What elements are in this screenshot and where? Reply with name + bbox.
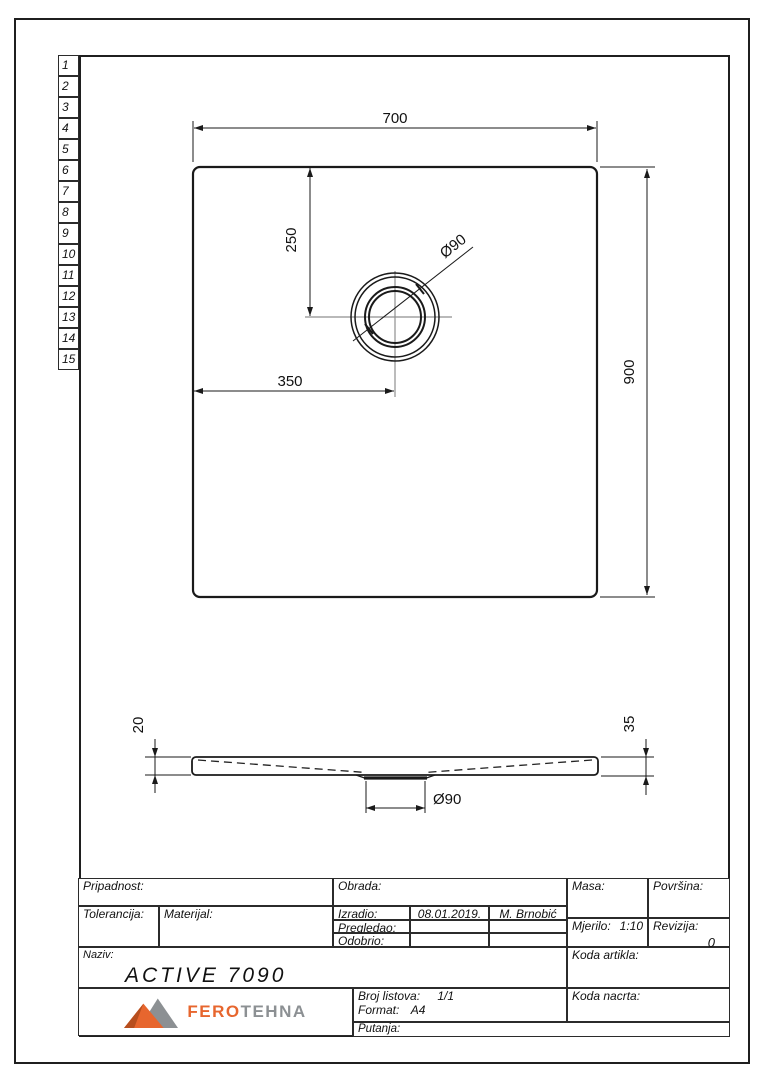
drawing-views: 700 900 250: [0, 0, 768, 870]
dim-drain-left-text: 350: [277, 373, 302, 390]
dim-rim-thickness-text: 20: [130, 717, 147, 734]
cell-koda-nacrta: Koda nacrta:: [567, 988, 730, 1022]
dimension-35: 35: [601, 716, 654, 795]
cell-naziv: Naziv: ACTIVE 7090: [78, 947, 567, 988]
cell-izradio-name: M. Brnobić: [489, 906, 567, 920]
koda-artikla-label: Koda artikla:: [572, 949, 639, 963]
revizija-label: Revizija:: [653, 920, 698, 934]
cell-pripadnost: Pripadnost:: [78, 878, 333, 906]
cell-izradio-date: 08.01.2019.: [410, 906, 489, 920]
ferotehna-logo-icon: [124, 995, 178, 1029]
broj-listova-value: 1/1: [437, 990, 454, 1004]
cell-povrsina: Površina:: [648, 878, 730, 918]
obrada-label: Obrada:: [338, 880, 381, 894]
tolerancija-label: Tolerancija:: [83, 908, 144, 922]
format-value: A4: [411, 1004, 426, 1018]
povrsina-label: Površina:: [653, 880, 703, 894]
cell-obrada: Obrada:: [333, 878, 567, 906]
dim-drain-top-text: 250: [283, 227, 300, 252]
cell-masa: Masa:: [567, 878, 648, 918]
dim-height-text: 900: [621, 359, 638, 384]
brand-tehna: TEHNA: [241, 1002, 307, 1021]
dim-section-drain-text: Ø90: [433, 791, 461, 808]
cell-revizija: Revizija: 0: [648, 918, 730, 947]
mjerilo-label: Mjerilo:: [572, 920, 611, 934]
format-label: Format:: [358, 1004, 399, 1018]
putanja-label: Putanja:: [358, 1023, 400, 1036]
cell-putanja: Putanja:: [353, 1022, 730, 1037]
cell-logo: FEROTEHNA: [78, 988, 353, 1036]
cell-tolerancija: Tolerancija:: [78, 906, 159, 947]
cell-pregledao-value2: [489, 920, 567, 933]
brand-text: FEROTEHNA: [187, 1002, 306, 1022]
cell-pregledao-value: [410, 920, 489, 933]
dim-width-text: 700: [382, 110, 407, 127]
top-view: 700 900 250: [193, 110, 655, 597]
naziv-label: Naziv:: [83, 949, 562, 962]
tray-section-profile: [192, 757, 598, 775]
naziv-value: ACTIVE 7090: [125, 964, 562, 988]
dimension-900: 900: [600, 167, 655, 597]
dimension-700: 700: [193, 110, 597, 162]
broj-listova-label: Broj listova:: [358, 990, 420, 1004]
dimension-section-drain: Ø90: [366, 781, 461, 813]
brand-fero: FERO: [187, 1002, 240, 1021]
cell-koda-artikla: Koda artikla:: [567, 947, 730, 988]
cell-izradio-label: Izradio:: [333, 906, 410, 920]
cell-mjerilo: Mjerilo: 1:10: [567, 918, 648, 947]
cell-broj-format: Broj listova: 1/1 Format: A4: [353, 988, 567, 1022]
drawing-sheet: 1 2 3 4 5 6 7 8 9 10 11 12 13 14 15: [0, 0, 768, 1086]
masa-label: Masa:: [572, 880, 605, 894]
cell-odobrio-value2: [489, 933, 567, 947]
section-view: 20 35 Ø90: [130, 716, 654, 813]
koda-nacrta-label: Koda nacrta:: [572, 990, 640, 1004]
cell-odobrio-value: [410, 933, 489, 947]
mjerilo-value: 1:10: [620, 920, 643, 934]
cell-odobrio-label: Odobrio:: [333, 933, 410, 947]
dimension-20: 20: [130, 717, 191, 793]
dim-total-height-text: 35: [621, 716, 638, 733]
cell-materijal: Materijal:: [159, 906, 333, 947]
cell-pregledao-label: Pregledao:: [333, 920, 410, 933]
materijal-label: Materijal:: [164, 908, 213, 922]
pripadnost-label: Pripadnost:: [83, 880, 144, 894]
